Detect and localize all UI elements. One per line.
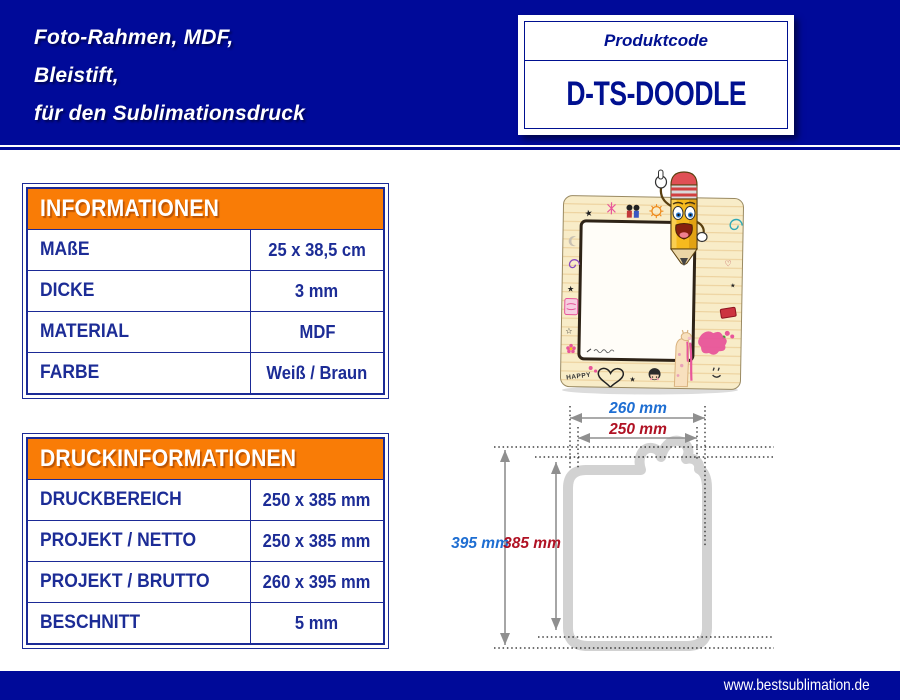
dim-width-outer-label: 260 mm	[608, 400, 667, 417]
spec-label: BESCHNITT	[40, 612, 140, 634]
page-title-line-2: Bleistift,	[34, 57, 305, 95]
spec-label-cell: BESCHNITT	[28, 603, 250, 643]
spec-label-cell: PROJEKT / NETTO	[28, 521, 250, 561]
table-row: PROJEKT / BRUTTO 260 x 395 mm	[28, 561, 383, 602]
print-info-table: DRUCKINFORMATIONEN DRUCKBEREICH 250 x 38…	[22, 433, 389, 649]
spec-value: 250 x 385 mm	[263, 531, 371, 552]
print-info-table-title: DRUCKINFORMATIONEN	[40, 445, 296, 473]
spec-label: FARBE	[40, 362, 99, 384]
spec-value: MDF	[299, 322, 335, 343]
footer-bar: www.bestsublimation.de	[0, 671, 900, 700]
product-code-box: Produktcode D-TS-DOODLE	[518, 15, 794, 135]
spec-label-cell: PROJEKT / BRUTTO	[28, 562, 250, 602]
spec-label-cell: DRUCKBEREICH	[28, 480, 250, 520]
spec-value-cell: 250 x 385 mm	[250, 480, 383, 520]
dim-width-inner-label: 250 mm	[608, 421, 667, 438]
spec-value: 25 x 38,5 cm	[268, 240, 366, 261]
spec-value: 260 x 395 mm	[263, 572, 371, 593]
spec-value: 3 mm	[295, 281, 338, 302]
spec-value-cell: 250 x 385 mm	[250, 521, 383, 561]
svg-text:★: ★	[730, 282, 736, 289]
svg-text:★: ★	[629, 376, 635, 384]
photo-frame-image: ★ ★ ☆	[560, 195, 743, 389]
page-title-line-3: für den Sublimationsdruck	[34, 95, 305, 133]
svg-text:♡: ♡	[724, 259, 731, 268]
spec-label-cell: MATERIAL	[28, 312, 250, 352]
print-info-table-header: DRUCKINFORMATIONEN	[28, 439, 383, 479]
dimension-diagram: 260 mm 250 mm 395 mm 385 mm	[448, 396, 792, 662]
svg-text:★: ★	[567, 285, 574, 294]
page-title: Foto-Rahmen, MDF, Bleistift, für den Sub…	[34, 19, 305, 133]
spec-value-cell: 3 mm	[250, 271, 383, 311]
table-row: PROJEKT / NETTO 250 x 385 mm	[28, 520, 383, 561]
product-code-value-wrap: D-TS-DOODLE	[525, 61, 787, 128]
info-table: INFORMATIONEN MAßE 25 x 38,5 cm DICKE 3 …	[22, 183, 389, 399]
frame-outline-shape	[568, 441, 707, 646]
footer-website-link[interactable]: www.bestsublimation.de	[724, 671, 870, 700]
spec-value-cell: 25 x 38,5 cm	[250, 230, 383, 270]
info-table-header: INFORMATIONEN	[28, 189, 383, 229]
spec-label: DICKE	[40, 280, 94, 302]
spec-value: 250 x 385 mm	[263, 490, 371, 511]
header-divider-rule	[0, 147, 900, 150]
table-row: FARBE Weiß / Braun	[28, 352, 383, 393]
spec-value-cell: 260 x 395 mm	[250, 562, 383, 602]
table-row: MAßE 25 x 38,5 cm	[28, 229, 383, 270]
dim-height-inner-label: 385 mm	[503, 535, 561, 552]
spec-label-cell: FARBE	[28, 353, 250, 393]
spec-value-cell: Weiß / Braun	[250, 353, 383, 393]
table-row: DICKE 3 mm	[28, 270, 383, 311]
info-table-title: INFORMATIONEN	[40, 195, 219, 223]
spec-label: PROJEKT / BRUTTO	[40, 571, 210, 593]
table-row: BESCHNITT 5 mm	[28, 602, 383, 643]
product-code-label: Produktcode	[525, 22, 787, 61]
product-code-box-frame: Produktcode D-TS-DOODLE	[524, 21, 788, 129]
svg-text:☆: ☆	[565, 327, 572, 336]
print-info-table-frame: DRUCKINFORMATIONEN DRUCKBEREICH 250 x 38…	[26, 437, 385, 645]
spec-label-cell: MAßE	[28, 230, 250, 270]
spec-label: MAßE	[40, 239, 90, 261]
table-row: DRUCKBEREICH 250 x 385 mm	[28, 479, 383, 520]
spec-label-cell: DICKE	[28, 271, 250, 311]
product-datasheet-page: Foto-Rahmen, MDF, Bleistift, für den Sub…	[0, 0, 900, 700]
page-title-line-1: Foto-Rahmen, MDF,	[34, 19, 305, 57]
product-photo: ★ ★ ☆	[552, 162, 748, 398]
dim-height-outer-label: 395 mm	[451, 535, 509, 552]
product-code-value: D-TS-DOODLE	[566, 75, 746, 114]
spec-value-cell: 5 mm	[250, 603, 383, 643]
spec-label: MATERIAL	[40, 321, 129, 343]
spec-value: 5 mm	[295, 613, 338, 634]
spec-label: DRUCKBEREICH	[40, 489, 182, 511]
table-row: MATERIAL MDF	[28, 311, 383, 352]
spec-value-cell: MDF	[250, 312, 383, 352]
spec-value: Weiß / Braun	[267, 363, 368, 384]
info-table-frame: INFORMATIONEN MAßE 25 x 38,5 cm DICKE 3 …	[26, 187, 385, 395]
spec-label: PROJEKT / NETTO	[40, 530, 196, 552]
